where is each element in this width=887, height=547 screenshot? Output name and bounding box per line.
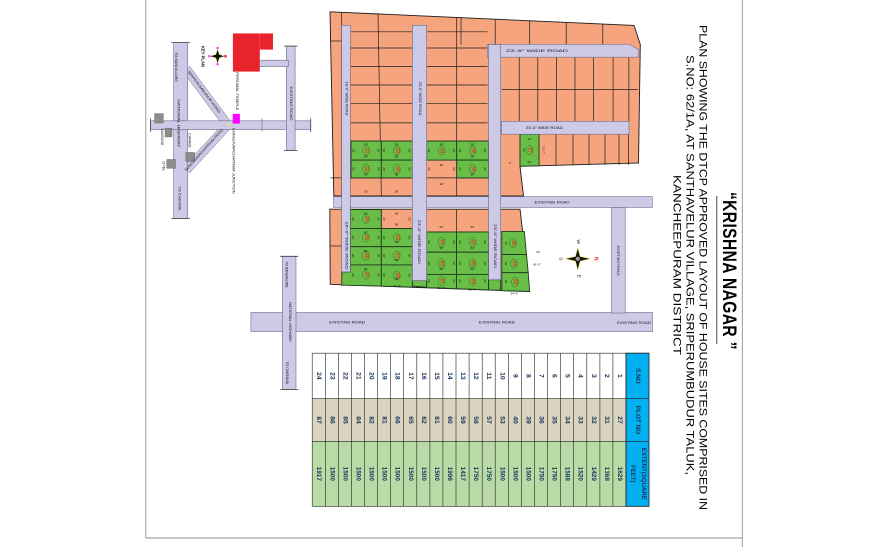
svg-text:50′: 50′ bbox=[471, 246, 475, 250]
svg-text:1368: 1368 bbox=[603, 467, 610, 482]
svg-text:1520: 1520 bbox=[577, 467, 584, 482]
svg-text:30′: 30′ bbox=[407, 149, 411, 153]
svg-text:1500: 1500 bbox=[511, 467, 518, 482]
svg-text:EXISTING ROAD: EXISTING ROAD bbox=[535, 201, 571, 205]
svg-text:S: S bbox=[558, 257, 564, 260]
svg-text:30′: 30′ bbox=[452, 167, 456, 171]
svg-text:34: 34 bbox=[564, 416, 571, 424]
svg-text:10: 10 bbox=[498, 372, 505, 380]
svg-text:15: 15 bbox=[433, 372, 440, 380]
svg-text:30′: 30′ bbox=[458, 240, 462, 244]
svg-text:30′: 30′ bbox=[376, 273, 380, 277]
svg-text:13: 13 bbox=[459, 372, 466, 380]
svg-text:23: 23 bbox=[328, 372, 335, 380]
svg-text:1750: 1750 bbox=[485, 467, 492, 482]
svg-text:62: 62 bbox=[470, 239, 476, 245]
svg-text:30′: 30′ bbox=[382, 217, 386, 221]
svg-text:14: 14 bbox=[446, 372, 453, 380]
svg-text:41′-4″: 41′-4″ bbox=[393, 284, 401, 288]
svg-text:82: 82 bbox=[368, 416, 375, 424]
svg-text:50′: 50′ bbox=[471, 225, 475, 229]
svg-text:57: 57 bbox=[485, 416, 492, 424]
svg-text:16: 16 bbox=[420, 372, 427, 380]
svg-text:50′: 50′ bbox=[364, 231, 368, 235]
svg-text:EXISTING ROAD: EXISTING ROAD bbox=[616, 246, 620, 277]
svg-text:35: 35 bbox=[394, 166, 400, 172]
svg-text:KANCHEEPURAM DISTRICT: KANCHEEPURAM DISTRICT bbox=[671, 175, 683, 355]
svg-text:EXTENT(SQUARE: EXTENT(SQUARE bbox=[640, 448, 646, 500]
svg-text:32: 32 bbox=[590, 416, 597, 424]
svg-text:59: 59 bbox=[459, 416, 466, 424]
svg-text:1500: 1500 bbox=[420, 467, 427, 482]
svg-text:24: 24 bbox=[315, 372, 322, 380]
svg-text:EXISTING ROAD: EXISTING ROAD bbox=[479, 320, 515, 324]
svg-text:9: 9 bbox=[511, 374, 518, 378]
svg-text:30′: 30′ bbox=[382, 236, 386, 240]
svg-text:12: 12 bbox=[472, 372, 479, 380]
svg-text:1750: 1750 bbox=[472, 467, 479, 482]
svg-text:30′: 30′ bbox=[427, 279, 431, 283]
svg-text:65: 65 bbox=[470, 260, 476, 266]
svg-text:90′: 90′ bbox=[440, 163, 444, 167]
svg-text:50′: 50′ bbox=[364, 267, 368, 271]
svg-text:13′-7″: 13′-7″ bbox=[542, 146, 546, 154]
svg-text:50′: 50′ bbox=[440, 225, 444, 229]
svg-text:16′-0″ WIDE ROAD: 16′-0″ WIDE ROAD bbox=[344, 82, 348, 116]
svg-text:53: 53 bbox=[498, 416, 505, 424]
svg-text:OYEL: OYEL bbox=[161, 161, 165, 171]
svg-text:1500: 1500 bbox=[381, 467, 388, 482]
svg-text:1417: 1417 bbox=[459, 467, 466, 482]
svg-text:30′: 30′ bbox=[351, 217, 355, 221]
svg-text:35: 35 bbox=[551, 416, 558, 424]
svg-text:S.NO: 62/1A, AT SANTHAVELUR VI: S.NO: 62/1A, AT SANTHAVELUR VILLAGE, SRI… bbox=[684, 55, 696, 475]
svg-text:30′: 30′ bbox=[407, 273, 411, 277]
svg-text:30′: 30′ bbox=[483, 149, 487, 153]
svg-text:40: 40 bbox=[510, 240, 516, 246]
svg-text:5: 5 bbox=[564, 374, 571, 378]
svg-text:33: 33 bbox=[577, 416, 584, 424]
svg-text:30′: 30′ bbox=[377, 149, 381, 153]
svg-text:30′: 30′ bbox=[351, 273, 355, 277]
svg-text:SAMSUNG: SAMSUNG bbox=[160, 128, 164, 145]
svg-text:84: 84 bbox=[363, 216, 369, 222]
svg-text:54′-0″: 54′-0″ bbox=[511, 292, 519, 296]
svg-text:N: N bbox=[592, 257, 598, 261]
svg-text:30′: 30′ bbox=[352, 167, 356, 171]
svg-text:23′-0″ WIDE ROAD: 23′-0″ WIDE ROAD bbox=[526, 126, 564, 130]
svg-text:1: 1 bbox=[616, 374, 623, 378]
svg-text:2: 2 bbox=[603, 374, 610, 378]
svg-text:1500: 1500 bbox=[498, 467, 505, 482]
svg-text:30′: 30′ bbox=[382, 273, 386, 277]
svg-text:61: 61 bbox=[433, 416, 440, 424]
svg-text:90′: 90′ bbox=[440, 143, 444, 147]
svg-text:62: 62 bbox=[420, 416, 427, 424]
svg-text:1500: 1500 bbox=[394, 467, 401, 482]
svg-text:30′: 30′ bbox=[458, 167, 462, 171]
svg-text:30′: 30′ bbox=[452, 279, 456, 283]
svg-text:CAPARO: CAPARO bbox=[188, 133, 192, 147]
svg-text:31: 31 bbox=[363, 148, 369, 154]
svg-text:20′: 20′ bbox=[528, 160, 532, 164]
svg-text:TO CHENNAI: TO CHENNAI bbox=[178, 187, 182, 211]
svg-text:6: 6 bbox=[551, 374, 558, 378]
svg-text:33: 33 bbox=[394, 148, 400, 154]
svg-text:50′: 50′ bbox=[395, 143, 399, 147]
svg-text:50′: 50′ bbox=[364, 172, 368, 176]
svg-text:30′: 30′ bbox=[504, 280, 508, 284]
svg-text:17: 17 bbox=[407, 372, 414, 380]
svg-text:30′: 30′ bbox=[382, 254, 386, 258]
svg-text:EXISTING ROAD: EXISTING ROAD bbox=[617, 321, 651, 325]
svg-text:30′: 30′ bbox=[376, 217, 380, 221]
svg-text:TO CHENNAI: TO CHENNAI bbox=[285, 361, 289, 384]
svg-text:39: 39 bbox=[524, 416, 531, 424]
svg-text:23′-6″ WIDE ROAD: 23′-6″ WIDE ROAD bbox=[506, 49, 568, 53]
svg-text:87: 87 bbox=[363, 272, 369, 278]
svg-text:50′: 50′ bbox=[395, 172, 399, 176]
svg-text:PLOT NO: PLOT NO bbox=[634, 406, 641, 434]
svg-text:85: 85 bbox=[341, 416, 348, 424]
svg-text:50′: 50′ bbox=[364, 143, 368, 147]
svg-text:TO BANGALORE: TO BANGALORE bbox=[174, 52, 178, 83]
svg-text:PLAN SHOWING THE DTCP APPROVED: PLAN SHOWING THE DTCP APPROVED LAYOUT OF… bbox=[697, 25, 709, 510]
svg-text:1629: 1629 bbox=[616, 467, 623, 482]
svg-text:1429: 1429 bbox=[590, 467, 597, 482]
svg-text:50′: 50′ bbox=[364, 249, 368, 253]
svg-text:7: 7 bbox=[538, 374, 545, 378]
svg-text:39: 39 bbox=[470, 166, 476, 172]
svg-text:1500: 1500 bbox=[328, 467, 335, 482]
svg-text:58: 58 bbox=[472, 416, 479, 424]
svg-text:27: 27 bbox=[616, 416, 623, 424]
svg-text:20: 20 bbox=[368, 372, 375, 380]
svg-text:30′: 30′ bbox=[351, 236, 355, 240]
svg-text:65: 65 bbox=[407, 416, 414, 424]
svg-text:30′: 30′ bbox=[427, 149, 431, 153]
svg-text:40′: 40′ bbox=[536, 250, 540, 254]
svg-text:1500: 1500 bbox=[407, 467, 414, 482]
svg-text:50′: 50′ bbox=[395, 240, 399, 244]
svg-text:50′: 50′ bbox=[395, 190, 399, 194]
svg-text:19: 19 bbox=[381, 372, 388, 380]
svg-text:30′: 30′ bbox=[427, 240, 431, 244]
svg-text:90′: 90′ bbox=[440, 182, 444, 186]
svg-text:PERUMAL TEMPLE: PERUMAL TEMPLE bbox=[235, 72, 239, 111]
svg-text:30′: 30′ bbox=[427, 261, 431, 265]
svg-text:14′: 14′ bbox=[528, 137, 532, 141]
svg-text:16′-0″ WIDE ROAD: 16′-0″ WIDE ROAD bbox=[344, 221, 348, 270]
svg-text:21: 21 bbox=[355, 372, 362, 380]
svg-text:30′: 30′ bbox=[452, 261, 456, 265]
svg-text:1588: 1588 bbox=[564, 467, 571, 482]
svg-text:30′: 30′ bbox=[427, 167, 431, 171]
svg-text:22: 22 bbox=[341, 372, 348, 380]
svg-text:1750: 1750 bbox=[551, 467, 558, 482]
svg-text:90′: 90′ bbox=[471, 143, 475, 147]
svg-text:30′: 30′ bbox=[452, 149, 456, 153]
svg-text:18: 18 bbox=[394, 372, 401, 380]
svg-text:27: 27 bbox=[527, 147, 533, 153]
svg-text:32: 32 bbox=[363, 166, 369, 172]
svg-text:FEET): FEET) bbox=[629, 465, 635, 482]
svg-text:50′: 50′ bbox=[395, 223, 399, 227]
svg-text:41′-0″: 41′-0″ bbox=[533, 263, 541, 267]
svg-text:85: 85 bbox=[363, 235, 369, 241]
svg-text:59: 59 bbox=[439, 239, 445, 245]
svg-text:23′-0″ WIDE ROAD: 23′-0″ WIDE ROAD bbox=[417, 220, 421, 265]
svg-text:1917: 1917 bbox=[315, 467, 322, 482]
svg-text:30′: 30′ bbox=[407, 167, 411, 171]
svg-text:W: W bbox=[575, 240, 581, 245]
svg-text:30′: 30′ bbox=[407, 236, 411, 240]
svg-text:30′: 30′ bbox=[382, 167, 386, 171]
svg-text:30′: 30′ bbox=[522, 148, 526, 152]
svg-text:S.NO: S.NO bbox=[634, 368, 641, 384]
svg-text:1500: 1500 bbox=[355, 467, 362, 482]
svg-text:50′: 50′ bbox=[395, 258, 399, 262]
svg-text:30′: 30′ bbox=[483, 261, 487, 265]
svg-text:30′: 30′ bbox=[458, 279, 462, 283]
svg-text:EXISTING ROAD: EXISTING ROAD bbox=[289, 87, 293, 122]
svg-text:40: 40 bbox=[511, 416, 518, 424]
svg-text:30′: 30′ bbox=[483, 240, 487, 244]
svg-text:NATIONAL HIGHWAY: NATIONAL HIGHWAY bbox=[176, 99, 180, 148]
svg-text:8: 8 bbox=[524, 374, 531, 378]
svg-text:EXISTING ROAD: EXISTING ROAD bbox=[329, 320, 365, 324]
svg-text:1996: 1996 bbox=[446, 467, 453, 482]
svg-text:81: 81 bbox=[381, 416, 388, 424]
svg-text:1500: 1500 bbox=[433, 467, 440, 482]
svg-text:90′: 90′ bbox=[471, 172, 475, 176]
svg-text:NATIONAL HIGHWAY: NATIONAL HIGHWAY bbox=[288, 302, 292, 343]
svg-text:30′: 30′ bbox=[458, 149, 462, 153]
svg-text:53: 53 bbox=[511, 261, 517, 267]
svg-text:1500: 1500 bbox=[368, 467, 375, 482]
svg-text:84: 84 bbox=[355, 416, 362, 424]
svg-text:34: 34 bbox=[439, 148, 445, 154]
svg-text:30′: 30′ bbox=[376, 254, 380, 258]
svg-text:1750: 1750 bbox=[538, 467, 545, 482]
svg-text:60′: 60′ bbox=[395, 212, 399, 216]
svg-text:50′: 50′ bbox=[471, 267, 475, 271]
svg-text:TO BANGALORE: TO BANGALORE bbox=[285, 262, 289, 289]
svg-text:50′: 50′ bbox=[364, 212, 368, 216]
svg-text:41′-4″: 41′-4″ bbox=[468, 287, 476, 291]
svg-text:30′: 30′ bbox=[352, 149, 356, 153]
svg-text:86: 86 bbox=[328, 416, 335, 424]
svg-text:E: E bbox=[575, 275, 581, 278]
svg-text:87: 87 bbox=[315, 416, 322, 424]
svg-text:30′: 30′ bbox=[452, 240, 456, 244]
svg-text:30′: 30′ bbox=[377, 167, 381, 171]
svg-text:61: 61 bbox=[439, 278, 445, 284]
svg-text:30′: 30′ bbox=[407, 217, 411, 221]
svg-text:66: 66 bbox=[394, 416, 401, 424]
svg-text:11: 11 bbox=[485, 372, 492, 379]
svg-text:50′: 50′ bbox=[395, 277, 399, 281]
svg-text:30′: 30′ bbox=[504, 262, 508, 266]
svg-text:60: 60 bbox=[439, 260, 445, 266]
svg-text:30′: 30′ bbox=[376, 236, 380, 240]
svg-text:66: 66 bbox=[470, 279, 476, 285]
svg-text:“KRISHNA NAGAR ”: “KRISHNA NAGAR ” bbox=[718, 192, 739, 350]
svg-text:SUNGUVARCHATRAM JUNCTION: SUNGUVARCHATRAM JUNCTION bbox=[231, 128, 235, 195]
svg-text:30′: 30′ bbox=[458, 261, 462, 265]
svg-text:60: 60 bbox=[446, 416, 453, 424]
svg-text:36: 36 bbox=[470, 148, 476, 154]
svg-text:30′: 30′ bbox=[382, 149, 386, 153]
svg-text:1500: 1500 bbox=[341, 467, 348, 482]
svg-text:82: 82 bbox=[512, 279, 518, 285]
svg-text:30′: 30′ bbox=[483, 279, 487, 283]
svg-text:30′: 30′ bbox=[504, 241, 508, 245]
svg-text:50′: 50′ bbox=[440, 246, 444, 250]
svg-text:86: 86 bbox=[363, 253, 369, 259]
svg-text:30′: 30′ bbox=[351, 254, 355, 258]
svg-text:50′: 50′ bbox=[364, 190, 368, 194]
svg-text:23′-0″ WIDE ROAD: 23′-0″ WIDE ROAD bbox=[418, 82, 422, 116]
svg-text:50′: 50′ bbox=[395, 155, 399, 159]
svg-text:50′: 50′ bbox=[440, 267, 444, 271]
svg-text:90′: 90′ bbox=[471, 155, 475, 159]
svg-text:30′: 30′ bbox=[483, 167, 487, 171]
svg-text:3: 3 bbox=[590, 374, 597, 378]
svg-text:4: 4 bbox=[577, 374, 584, 378]
svg-text:51′-4″: 51′-4″ bbox=[437, 286, 445, 290]
svg-text:31: 31 bbox=[603, 416, 610, 424]
svg-text:36: 36 bbox=[538, 416, 545, 424]
svg-text:50′: 50′ bbox=[364, 155, 368, 159]
svg-text:1500: 1500 bbox=[524, 467, 531, 482]
svg-text:KEY PLAN: KEY PLAN bbox=[201, 46, 206, 68]
svg-text:30′: 30′ bbox=[407, 254, 411, 258]
svg-text:23′-0″ WIDE ROAD: 23′-0″ WIDE ROAD bbox=[493, 224, 497, 269]
